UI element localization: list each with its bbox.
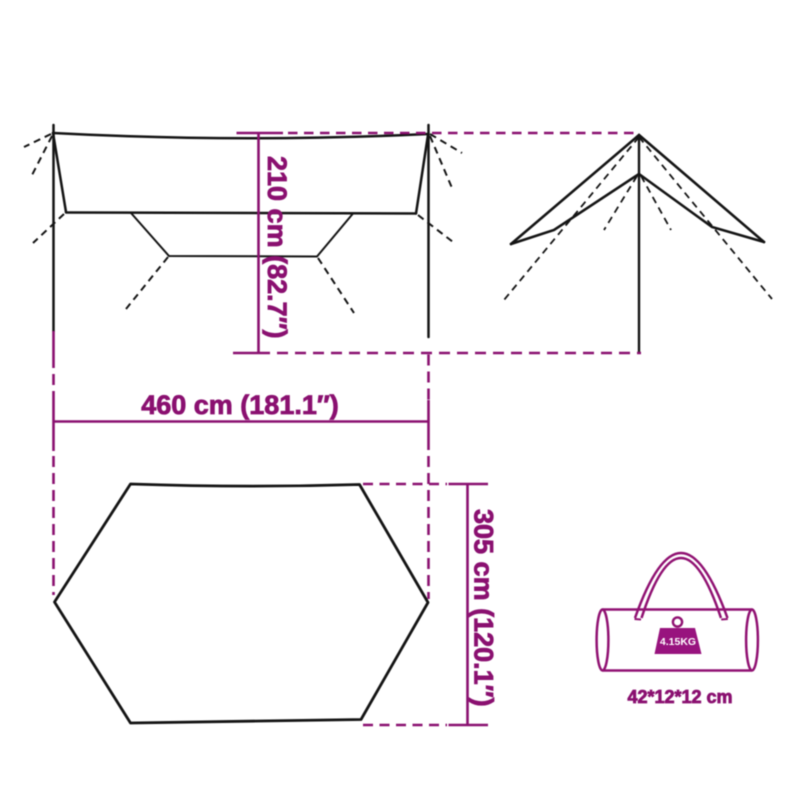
svg-text:4.15KG: 4.15KG	[660, 636, 696, 648]
svg-text:305 cm (120.1″): 305 cm (120.1″)	[469, 509, 499, 707]
svg-text:42*12*12 cm: 42*12*12 cm	[627, 687, 732, 707]
svg-text:210 cm (82.7″): 210 cm (82.7″)	[262, 156, 292, 339]
svg-text:460 cm (181.1″): 460 cm (181.1″)	[141, 390, 339, 420]
